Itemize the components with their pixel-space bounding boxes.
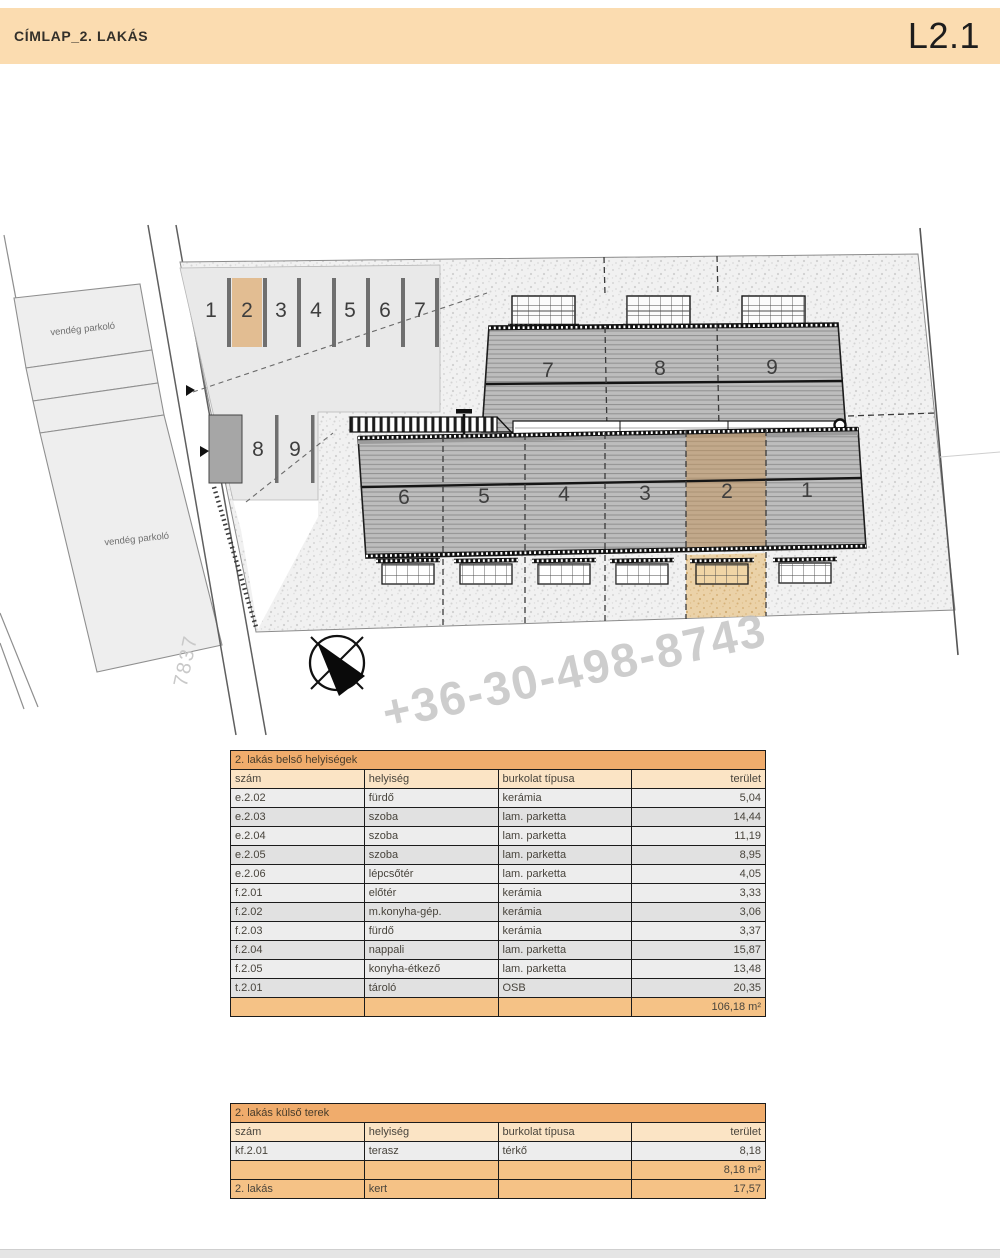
table-header-row: szám helyiség burkolat típusa terület — [231, 1123, 766, 1142]
cell-empty — [364, 1161, 498, 1180]
table-header-row: szám helyiség burkolat típusa terület — [231, 770, 766, 789]
cell-helyiseg: terasz — [364, 1142, 498, 1161]
cell-szam: e.2.03 — [231, 808, 365, 827]
terrace — [376, 560, 440, 584]
cell-burkolat: térkő — [498, 1142, 632, 1161]
terrace — [610, 560, 674, 584]
parking-number: 3 — [275, 299, 287, 322]
cell-szam: f.2.04 — [231, 941, 365, 960]
site-plan-drawing: vendég parkoló vendég parkoló 1 2 3 4 — [0, 215, 1000, 750]
table-row: f.2.03fürdőkerámia3,37 — [231, 922, 766, 941]
unit-number: 8 — [654, 357, 666, 380]
cell-burkolat: lam. parketta — [498, 808, 632, 827]
dormer-windows — [508, 296, 809, 326]
table-row: e.2.03szobalam. parketta14,44 — [231, 808, 766, 827]
cell-terulet: 8,18 — [632, 1142, 766, 1161]
cell-terulet: 3,33 — [632, 884, 766, 903]
cell-terulet: 3,06 — [632, 903, 766, 922]
cell-helyiseg: kert — [364, 1180, 498, 1199]
terrace-unit-2 — [690, 560, 754, 584]
table-row: t.2.01tárolóOSB20,35 — [231, 979, 766, 998]
cell-terulet: 8,95 — [632, 846, 766, 865]
cell-helyiseg: szoba — [364, 808, 498, 827]
cell-burkolat: lam. parketta — [498, 960, 632, 979]
compass-icon — [310, 636, 365, 696]
col-header-terulet: terület — [632, 1123, 766, 1142]
upper-building: 7 8 9 — [482, 323, 846, 432]
table-title-row: 2. lakás belső helyiségek — [231, 751, 766, 770]
cell-szam: e.2.04 — [231, 827, 365, 846]
cell-szam: t.2.01 — [231, 979, 365, 998]
col-header-burkolat: burkolat típusa — [498, 770, 632, 789]
cell-empty — [498, 1161, 632, 1180]
drawing-sheet: CÍMLAP_2. LAKÁS L2.1 — [0, 0, 1000, 1258]
cell-burkolat: OSB — [498, 979, 632, 998]
parking-number: 1 — [205, 299, 217, 322]
cell-helyiseg: nappali — [364, 941, 498, 960]
cell-szam: f.2.02 — [231, 903, 365, 922]
table-garden-row: 2. lakás kert 17,57 — [231, 1180, 766, 1199]
cell-helyiseg: m.konyha-gép. — [364, 903, 498, 922]
cell-burkolat: lam. parketta — [498, 865, 632, 884]
lower-building: 6 5 4 3 2 1 — [358, 428, 866, 558]
table-row: e.2.05szobalam. parketta8,95 — [231, 846, 766, 865]
cell-subtotal-area: 8,18 m² — [632, 1161, 766, 1180]
parking-number: 7 — [414, 299, 426, 322]
table-row: e.2.06lépcsőtérlam. parketta4,05 — [231, 865, 766, 884]
cell-helyiseg: fürdő — [364, 789, 498, 808]
parking-number: 4 — [310, 299, 322, 322]
table-row: kf.2.01 terasz térkő 8,18 — [231, 1142, 766, 1161]
cell-terulet: 11,19 — [632, 827, 766, 846]
cell-burkolat: kerámia — [498, 922, 632, 941]
cell-terulet: 5,04 — [632, 789, 766, 808]
parking-number: 9 — [289, 438, 301, 461]
col-header-helyiseg: helyiség — [364, 770, 498, 789]
unit-number: 5 — [478, 485, 490, 508]
cell-terulet: 17,57 — [632, 1180, 766, 1199]
cell-terulet: 14,44 — [632, 808, 766, 827]
cell-terulet: 15,87 — [632, 941, 766, 960]
table-subtotal-row: 8,18 m² — [231, 1161, 766, 1180]
direction-arrow-icon — [186, 385, 195, 396]
cell-szam: f.2.05 — [231, 960, 365, 979]
table-total-row: 106,18 m² — [231, 998, 766, 1017]
cell-burkolat: kerámia — [498, 903, 632, 922]
parking-number: 5 — [344, 299, 356, 322]
parking-number: 6 — [379, 299, 391, 322]
exterior-spaces-table: 2. lakás külső terek szám helyiség burko… — [230, 1103, 766, 1199]
dormer-window — [623, 296, 694, 326]
cell-helyiseg: lépcsőtér — [364, 865, 498, 884]
cell-helyiseg: szoba — [364, 846, 498, 865]
cell-empty — [231, 998, 365, 1017]
direction-arrow-icon — [200, 446, 209, 457]
unit-number: 3 — [639, 482, 651, 505]
table-title: 2. lakás belső helyiségek — [231, 751, 766, 770]
col-header-szam: szám — [231, 1123, 365, 1142]
cell-helyiseg: tároló — [364, 979, 498, 998]
utility-structure — [209, 415, 242, 483]
terrace — [532, 560, 596, 584]
unit-number: 4 — [558, 483, 570, 506]
dormer-window — [738, 296, 809, 326]
sheet-code: L2.1 — [908, 15, 980, 57]
table-row: f.2.04nappalilam. parketta15,87 — [231, 941, 766, 960]
cell-szam: e.2.02 — [231, 789, 365, 808]
dormer-window — [508, 296, 579, 326]
walkway-stairs — [350, 417, 497, 432]
cell-total-area: 106,18 m² — [632, 998, 766, 1017]
table-row: f.2.05konyha-étkezőlam. parketta13,48 — [231, 960, 766, 979]
cell-szam: 2. lakás — [231, 1180, 365, 1199]
table-title: 2. lakás külső terek — [231, 1104, 766, 1123]
unit-number: 2 — [721, 480, 733, 503]
table-row: e.2.02fürdőkerámia5,04 — [231, 789, 766, 808]
parking-number: 8 — [252, 438, 264, 461]
cell-burkolat — [498, 1180, 632, 1199]
site-plan: vendég parkoló vendég parkoló 1 2 3 4 — [0, 215, 1000, 750]
table-row: f.2.01előtérkerámia3,33 — [231, 884, 766, 903]
cell-empty — [231, 1161, 365, 1180]
cell-terulet: 3,37 — [632, 922, 766, 941]
cell-empty — [364, 998, 498, 1017]
unit-number: 6 — [398, 486, 410, 509]
cell-helyiseg: konyha-étkező — [364, 960, 498, 979]
cell-burkolat: lam. parketta — [498, 941, 632, 960]
table-row: e.2.04szobalam. parketta11,19 — [231, 827, 766, 846]
cell-burkolat: lam. parketta — [498, 827, 632, 846]
cell-terulet: 4,05 — [632, 865, 766, 884]
table-title-row: 2. lakás külső terek — [231, 1104, 766, 1123]
cell-empty — [498, 998, 632, 1017]
cell-szam: e.2.06 — [231, 865, 365, 884]
table-row: f.2.02m.konyha-gép.kerámia3,06 — [231, 903, 766, 922]
unit-number: 7 — [542, 359, 554, 382]
footer-strip — [0, 1249, 1000, 1258]
cell-szam: kf.2.01 — [231, 1142, 365, 1161]
cell-helyiseg: előtér — [364, 884, 498, 903]
title-bar: CÍMLAP_2. LAKÁS L2.1 — [0, 8, 1000, 64]
cell-szam: f.2.01 — [231, 884, 365, 903]
unit-number: 9 — [766, 356, 778, 379]
cell-burkolat: lam. parketta — [498, 846, 632, 865]
parking-number: 2 — [241, 299, 253, 322]
cell-burkolat: kerámia — [498, 789, 632, 808]
cell-szam: e.2.05 — [231, 846, 365, 865]
interior-rooms-table: 2. lakás belső helyiségek szám helyiség … — [230, 750, 766, 1017]
col-header-szam: szám — [231, 770, 365, 789]
cell-burkolat: kerámia — [498, 884, 632, 903]
cell-szam: f.2.03 — [231, 922, 365, 941]
cell-helyiseg: szoba — [364, 827, 498, 846]
terrace — [773, 559, 837, 583]
unit-number: 1 — [801, 479, 813, 502]
cell-terulet: 20,35 — [632, 979, 766, 998]
col-header-burkolat: burkolat típusa — [498, 1123, 632, 1142]
cell-helyiseg: fürdő — [364, 922, 498, 941]
col-header-terulet: terület — [632, 770, 766, 789]
cell-terulet: 13,48 — [632, 960, 766, 979]
terrace — [454, 560, 518, 584]
col-header-helyiseg: helyiség — [364, 1123, 498, 1142]
page-title: CÍMLAP_2. LAKÁS — [14, 28, 148, 44]
